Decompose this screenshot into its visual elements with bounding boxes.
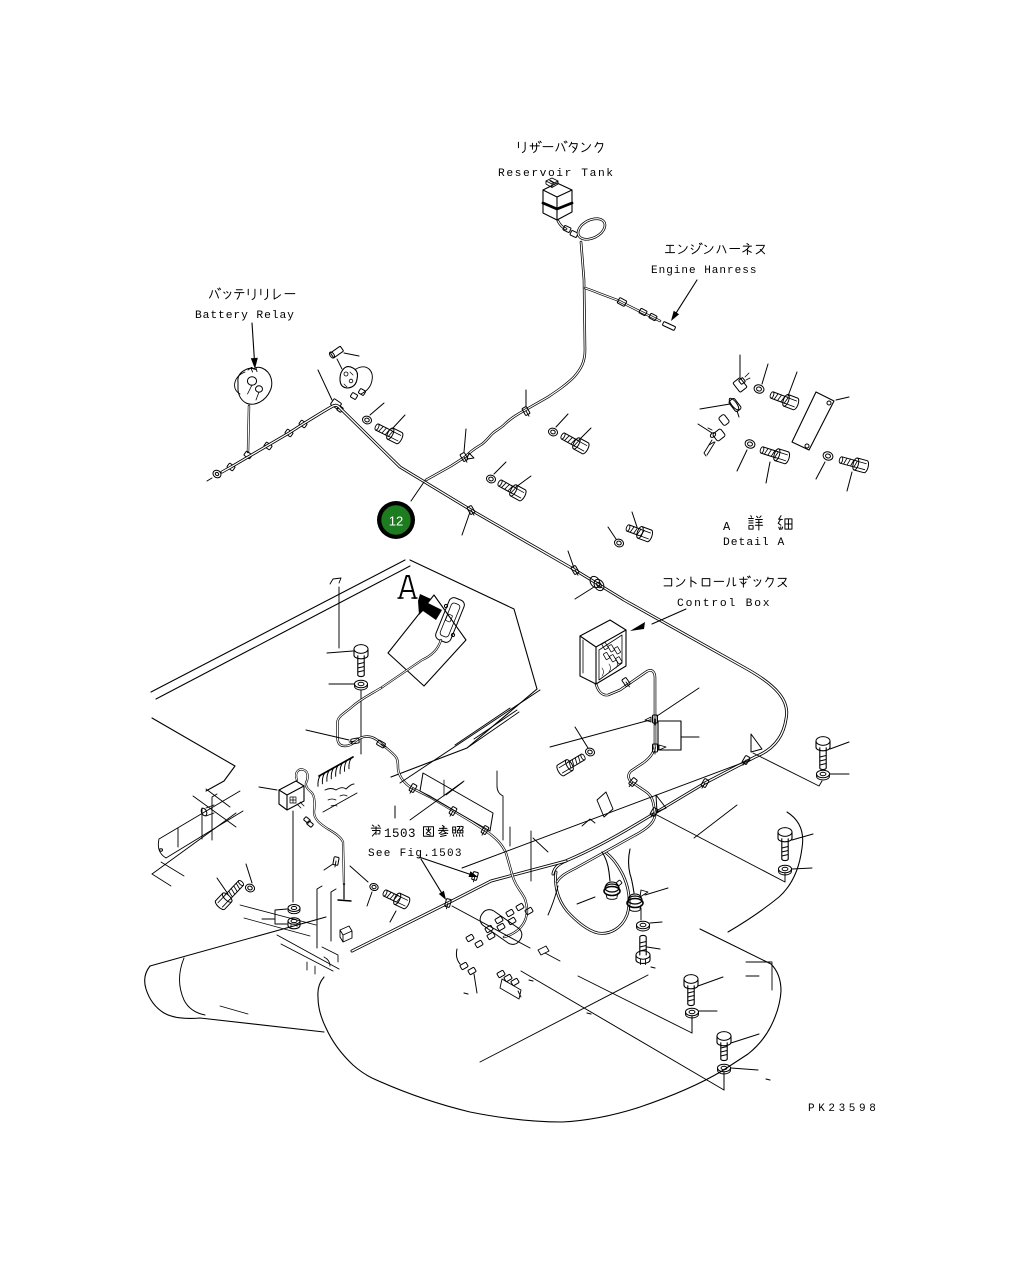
svg-text:Control Box: Control Box [677, 598, 771, 610]
svg-text:12: 12 [389, 514, 403, 529]
svg-text:A: A [723, 520, 731, 534]
svg-text:PK23598: PK23598 [808, 1103, 879, 1115]
svg-text:Reservoir Tank: Reservoir Tank [498, 168, 615, 180]
svg-text:Battery Relay: Battery Relay [195, 310, 295, 322]
svg-text:1503: 1503 [384, 827, 416, 841]
svg-text:Detail A: Detail A [723, 537, 785, 549]
svg-text:Engine Hanress: Engine Hanress [651, 265, 757, 277]
svg-text:See Fig.1503: See Fig.1503 [368, 848, 463, 860]
